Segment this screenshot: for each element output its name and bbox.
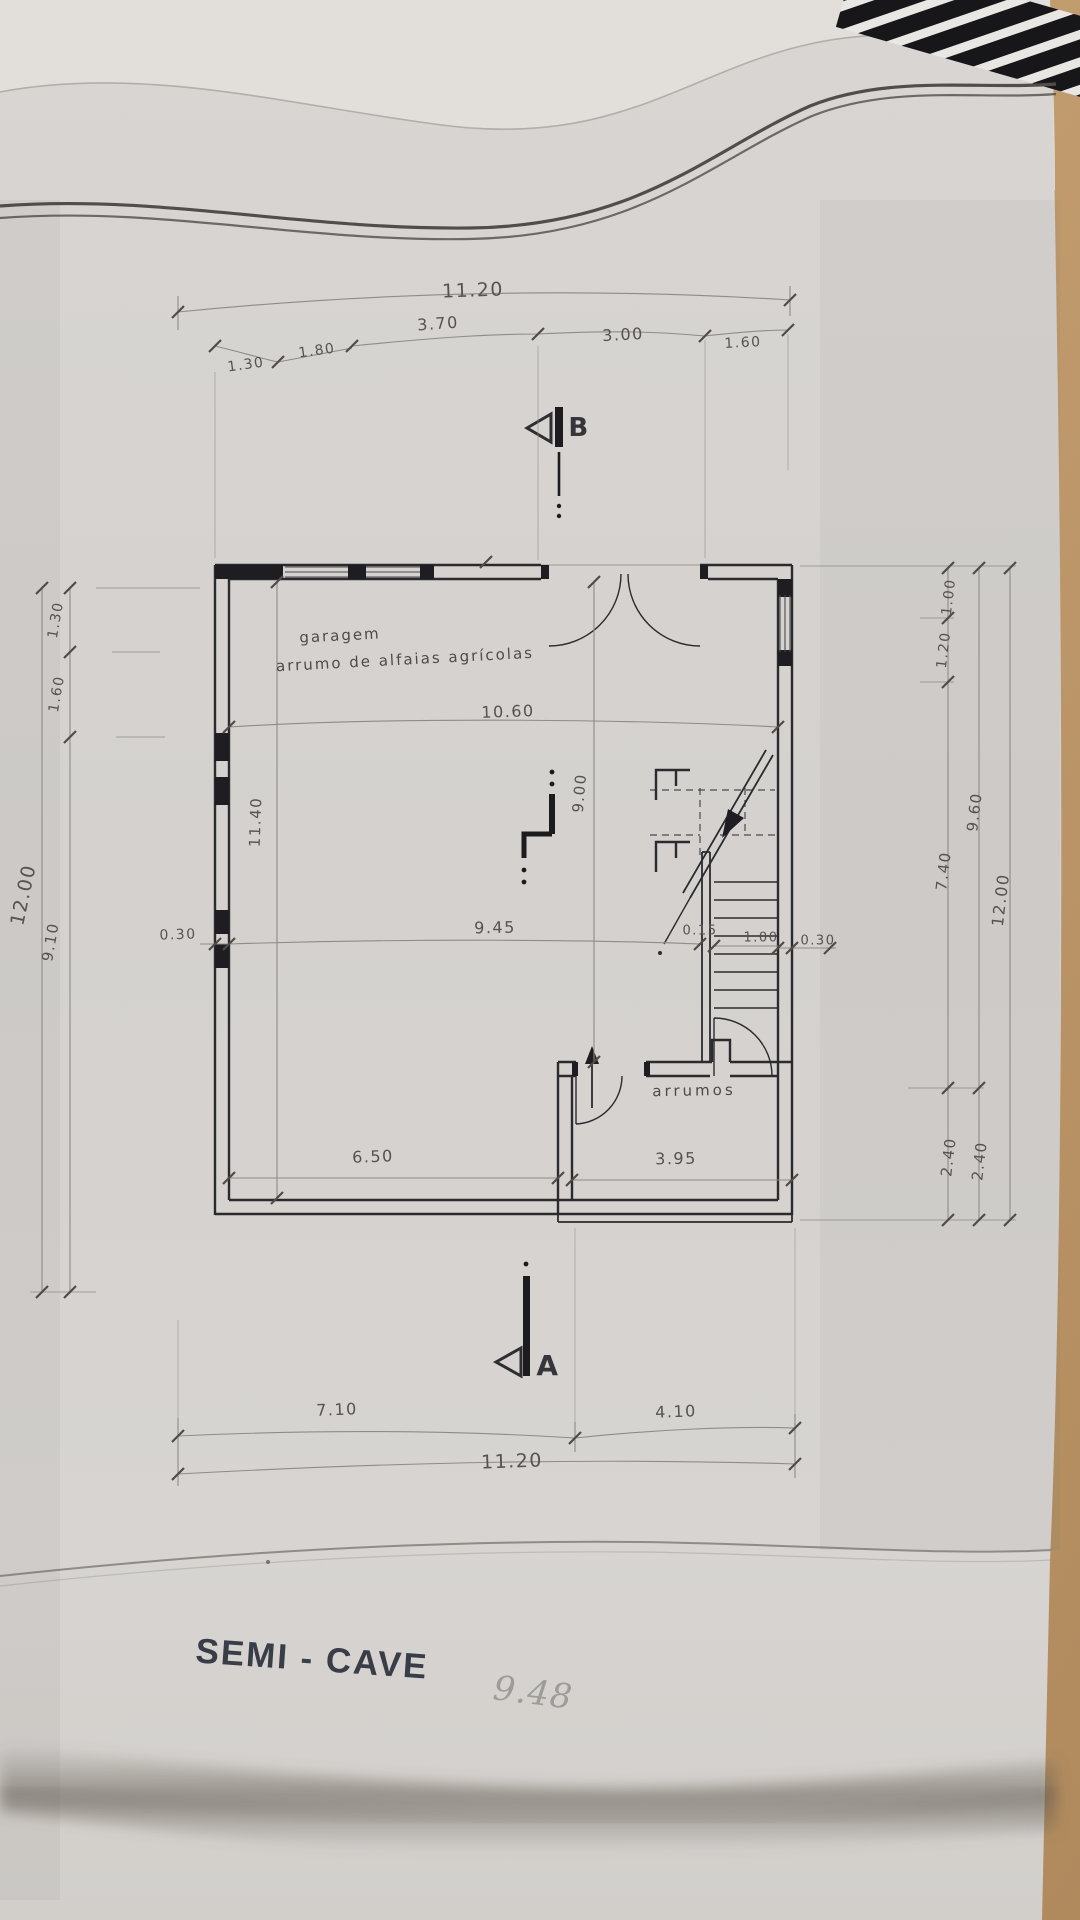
dim-top-3-70: 3.70	[417, 315, 460, 334]
dim-bottom-total: 11.20	[481, 1451, 544, 1472]
dim-bottom-4-10: 4.10	[655, 1403, 697, 1420]
room-label-garage-line1: garagem	[299, 626, 381, 645]
dim-top-1-60: 1.60	[724, 335, 762, 351]
dim-top-total: 11.20	[442, 280, 505, 301]
photographed-floor-plan: 11.20 3.70 3.00 1.60 1.30 1.80 12.00 1.3…	[0, 0, 1080, 1920]
room-label-storage: arrumos	[652, 1083, 736, 1099]
dim-int-3-95: 3.95	[655, 1151, 697, 1168]
dim-int-0-30: 0.30	[801, 935, 836, 948]
dim-int-1-00: 1.00	[744, 932, 779, 945]
section-b-letter: B	[568, 415, 589, 441]
dim-int-6-50: 6.50	[352, 1148, 394, 1165]
dim-top-3-00: 3.00	[602, 326, 644, 344]
dim-left-wall-0-30: 0.30	[159, 927, 197, 942]
dim-inner-11-40: 11.40	[248, 797, 265, 848]
plan-linework	[0, 0, 1080, 1920]
dim-int-9-45: 9.45	[474, 920, 516, 937]
handwritten-note: 9.48	[491, 1671, 574, 1714]
section-a-letter: A	[536, 1352, 559, 1380]
dim-int-9-00: 9.00	[571, 773, 589, 814]
dim-int-0-15: 0.15	[683, 925, 718, 938]
dim-bottom-7-10: 7.10	[316, 1401, 358, 1418]
dim-int-10-60: 10.60	[481, 703, 535, 721]
